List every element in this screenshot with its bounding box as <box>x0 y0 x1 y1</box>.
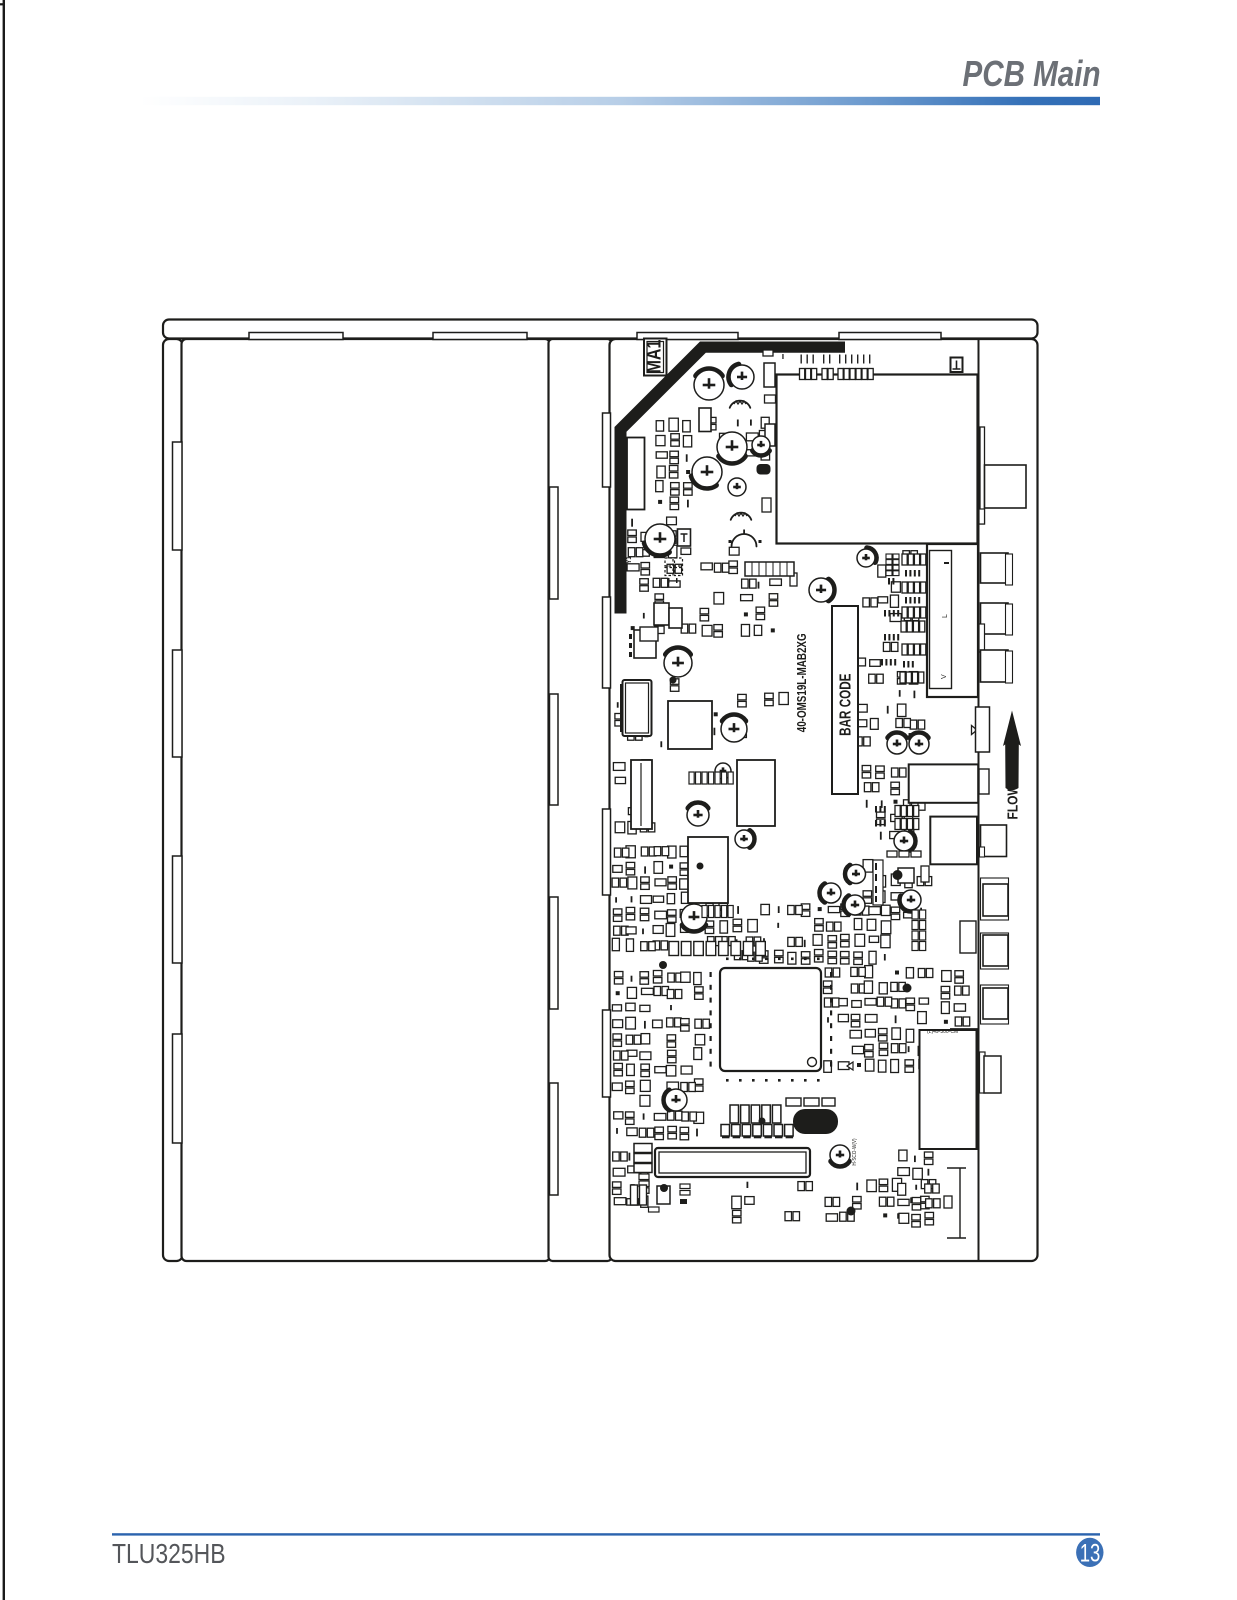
svg-text:(L)49-300-CM: (L)49-300-CM <box>927 1029 958 1035</box>
svg-text:40-OMS19L-MAB2XG: 40-OMS19L-MAB2XG <box>795 633 810 732</box>
svg-text:FLOW: FLOW <box>1004 784 1021 819</box>
svg-text:PCB Main: PCB Main <box>963 54 1101 95</box>
svg-text:TLU325HB: TLU325HB <box>112 1539 226 1570</box>
svg-text:MA1: MA1 <box>643 340 665 374</box>
svg-text:BAR CODE: BAR CODE <box>836 674 854 736</box>
svg-text:H-SCO-W(V): H-SCO-W(V) <box>852 1138 858 1165</box>
svg-text:L: L <box>942 614 949 618</box>
svg-text:V: V <box>941 674 948 679</box>
svg-text:Y1: Y1 <box>626 556 634 564</box>
svg-text:13: 13 <box>1080 1539 1101 1567</box>
